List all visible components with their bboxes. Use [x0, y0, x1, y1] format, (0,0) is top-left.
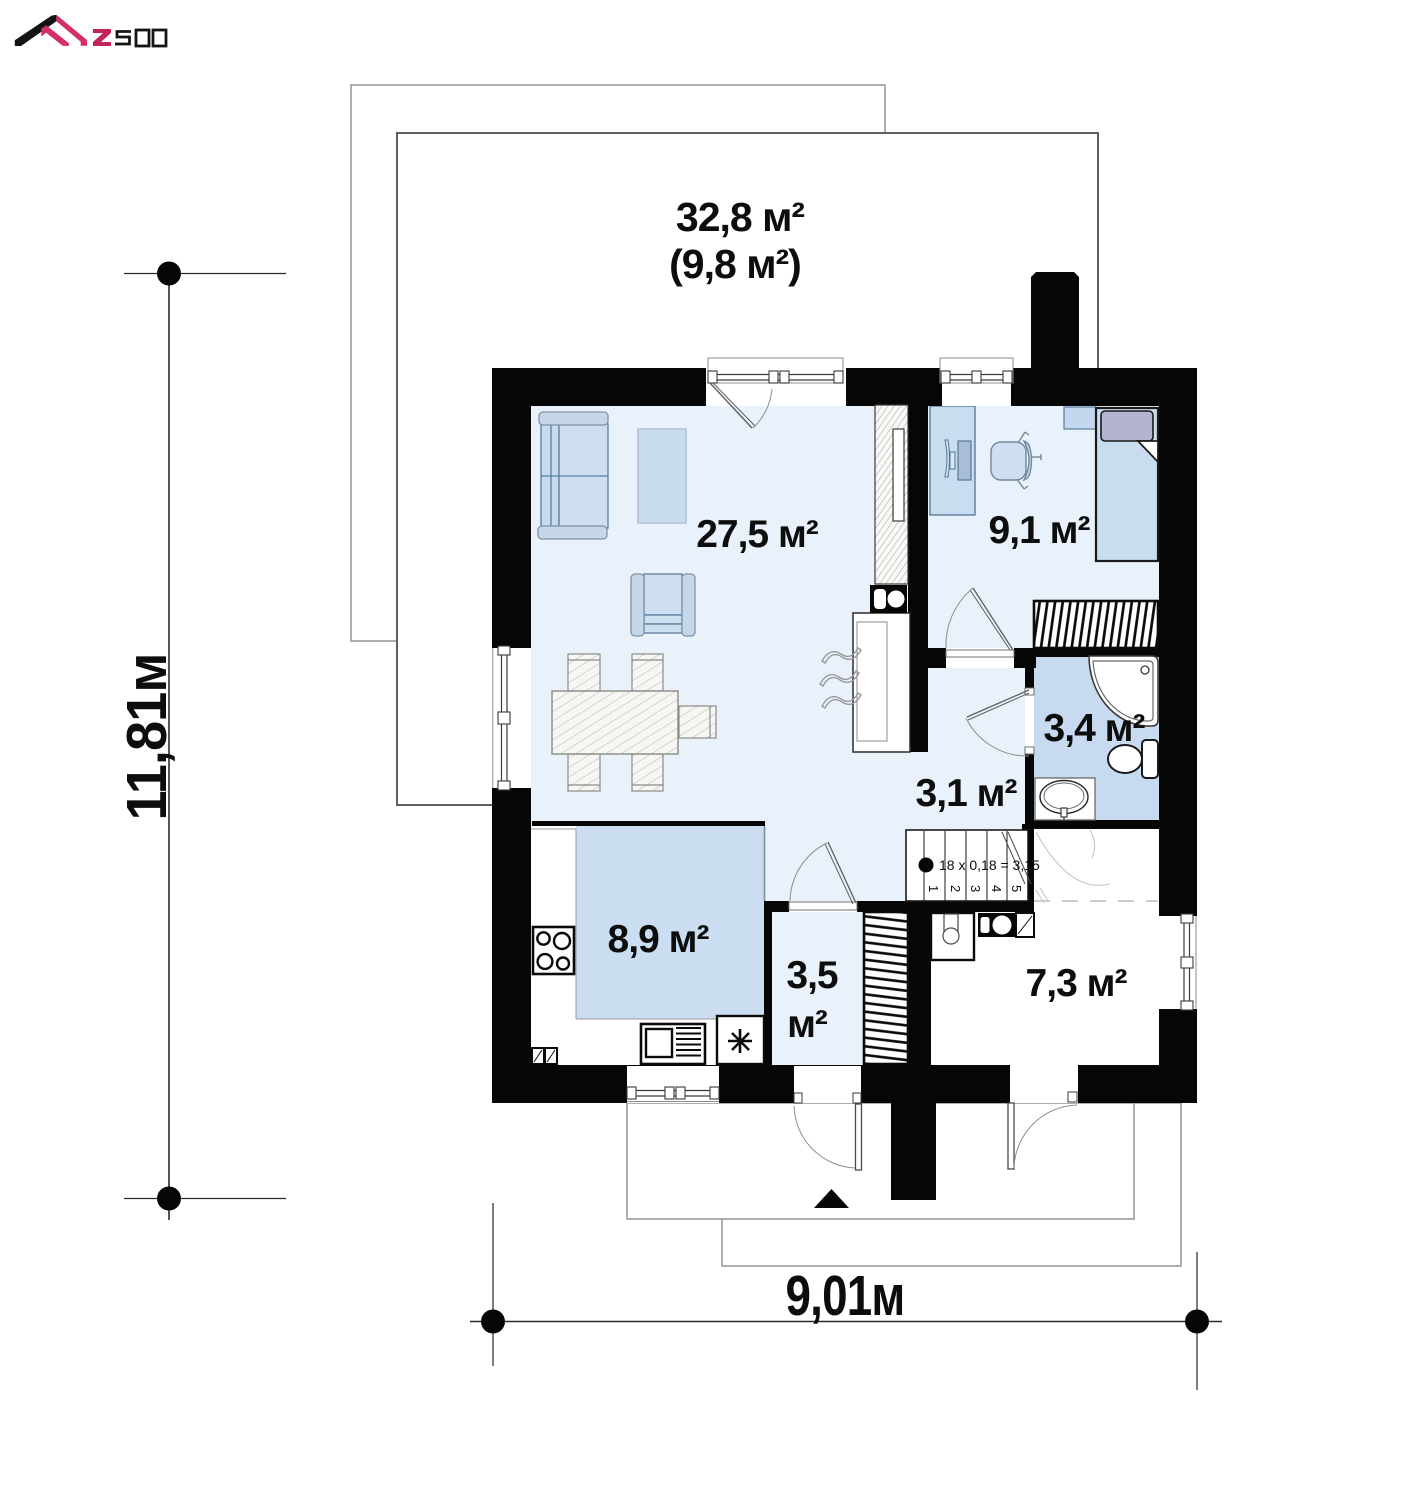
svg-text:3: 3 [968, 885, 983, 892]
svg-text:3,1 м²: 3,1 м² [916, 772, 1018, 815]
svg-text:2: 2 [948, 885, 963, 892]
svg-text:27,5 м²: 27,5 м² [696, 513, 819, 556]
svg-text:4: 4 [989, 885, 1004, 892]
svg-text:8,9 м²: 8,9 м² [608, 918, 710, 961]
svg-text:1: 1 [926, 885, 941, 892]
svg-text:3,5: 3,5 [786, 954, 838, 997]
svg-text:5: 5 [1009, 885, 1024, 892]
svg-text:7,3 м²: 7,3 м² [1026, 962, 1128, 1005]
svg-text:(9,8 м²): (9,8 м²) [669, 241, 801, 287]
svg-text:м²: м² [787, 1003, 828, 1046]
svg-text:18 x 0,18 = 3,15: 18 x 0,18 = 3,15 [939, 857, 1040, 873]
svg-text:9,1 м²: 9,1 м² [989, 509, 1091, 552]
svg-text:9,01м: 9,01м [786, 1264, 905, 1328]
svg-text:3,4 м²: 3,4 м² [1044, 707, 1146, 750]
svg-text:32,8 м²: 32,8 м² [676, 194, 805, 240]
svg-text:11,81м: 11,81м [115, 654, 179, 821]
